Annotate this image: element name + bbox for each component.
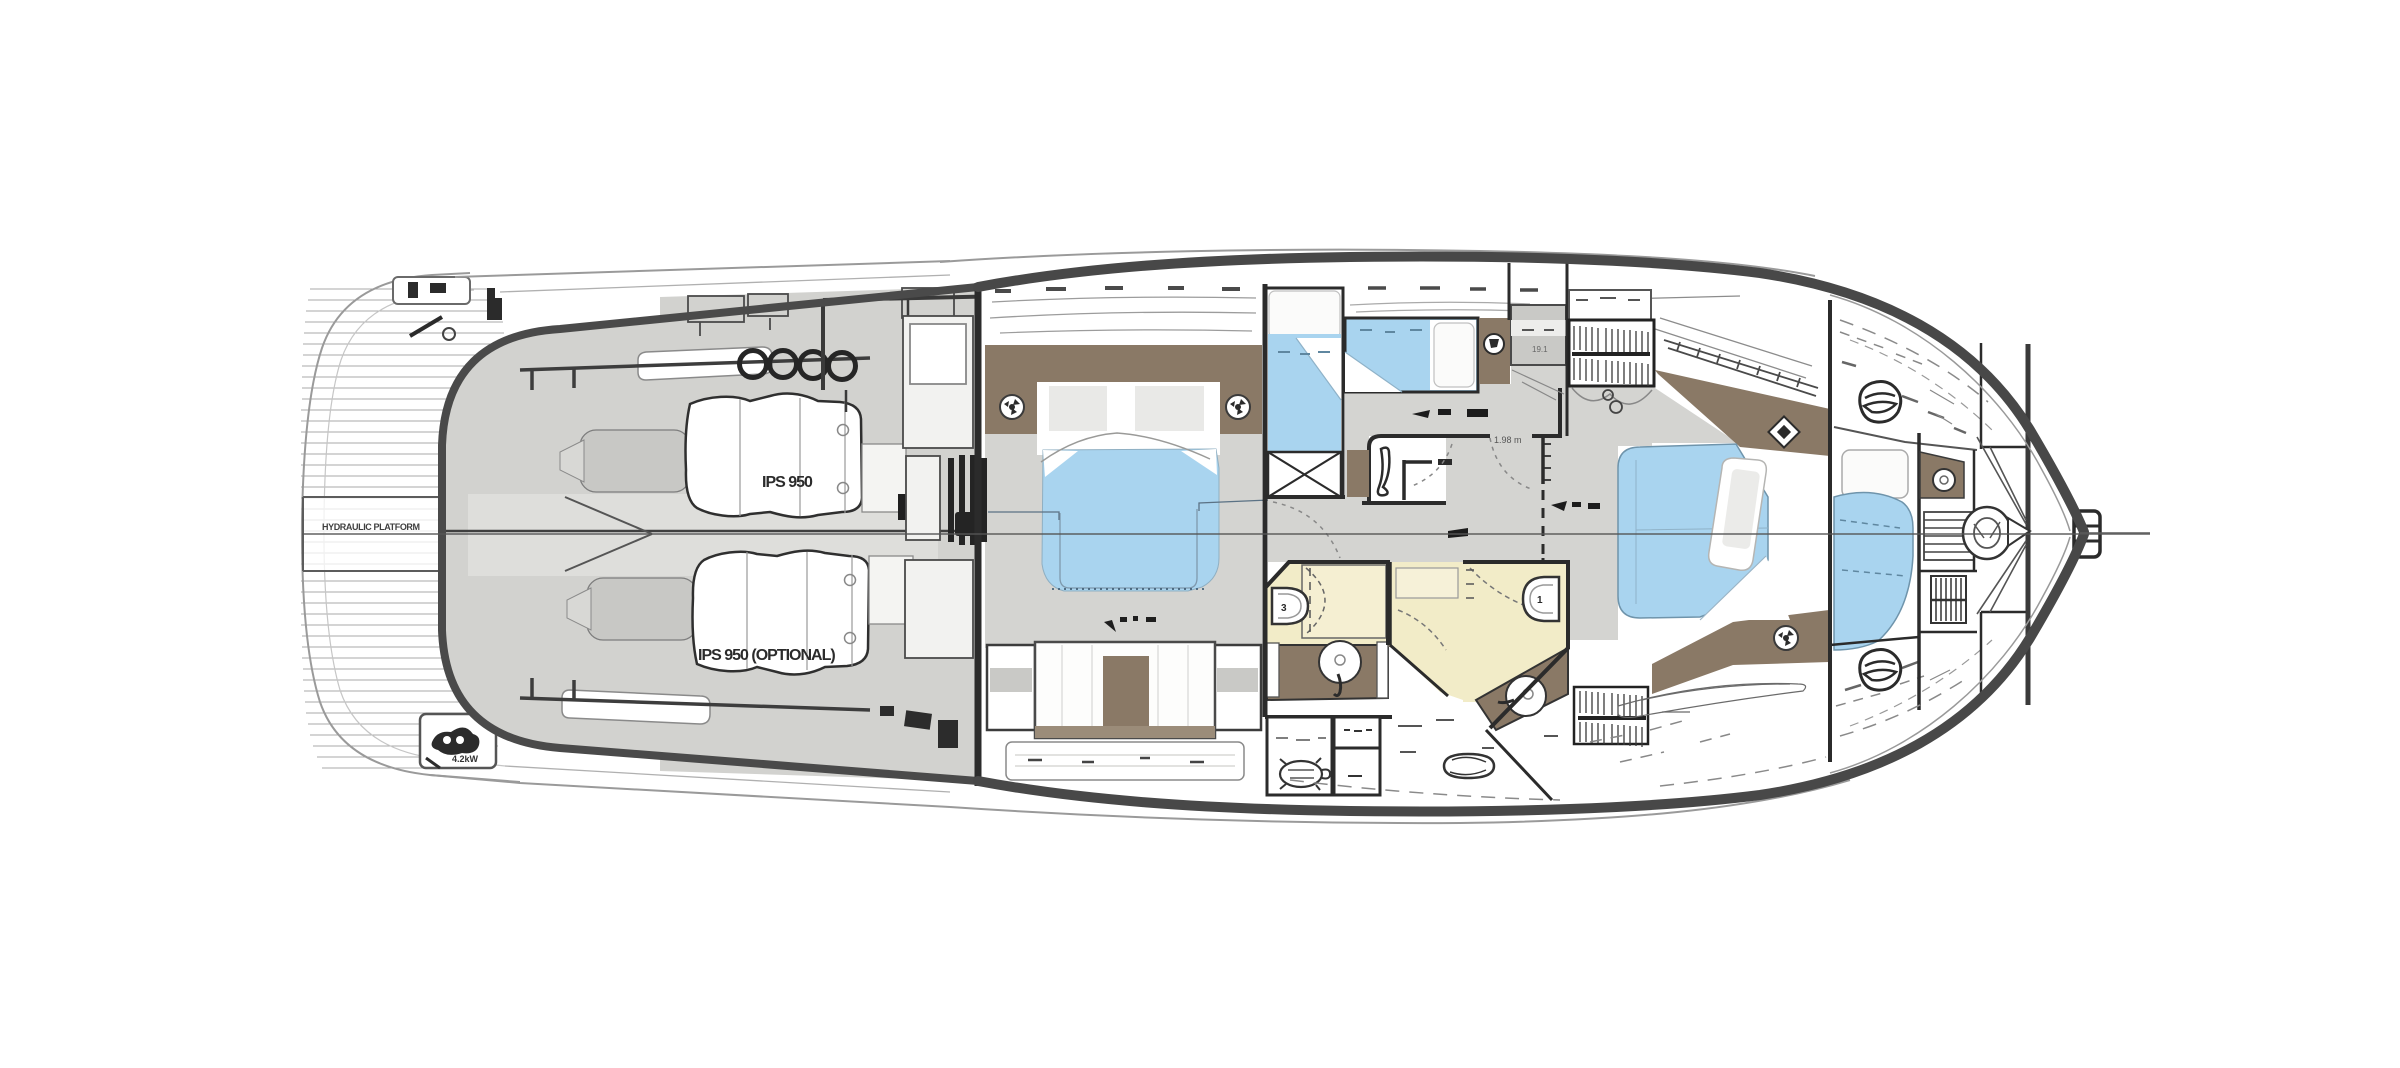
svg-text:IPS 950: IPS 950 bbox=[762, 474, 813, 491]
svg-text:HYDRAULIC PLATFORM: HYDRAULIC PLATFORM bbox=[322, 522, 420, 532]
svg-text:4.2kW: 4.2kW bbox=[452, 754, 479, 764]
svg-text:1: 1 bbox=[1537, 595, 1543, 606]
svg-text:IPS 950 (OPTIONAL): IPS 950 (OPTIONAL) bbox=[698, 647, 835, 664]
svg-text:3: 3 bbox=[1281, 603, 1287, 614]
svg-text:19.1: 19.1 bbox=[1532, 345, 1548, 354]
svg-text:1.98 m: 1.98 m bbox=[1494, 435, 1522, 445]
